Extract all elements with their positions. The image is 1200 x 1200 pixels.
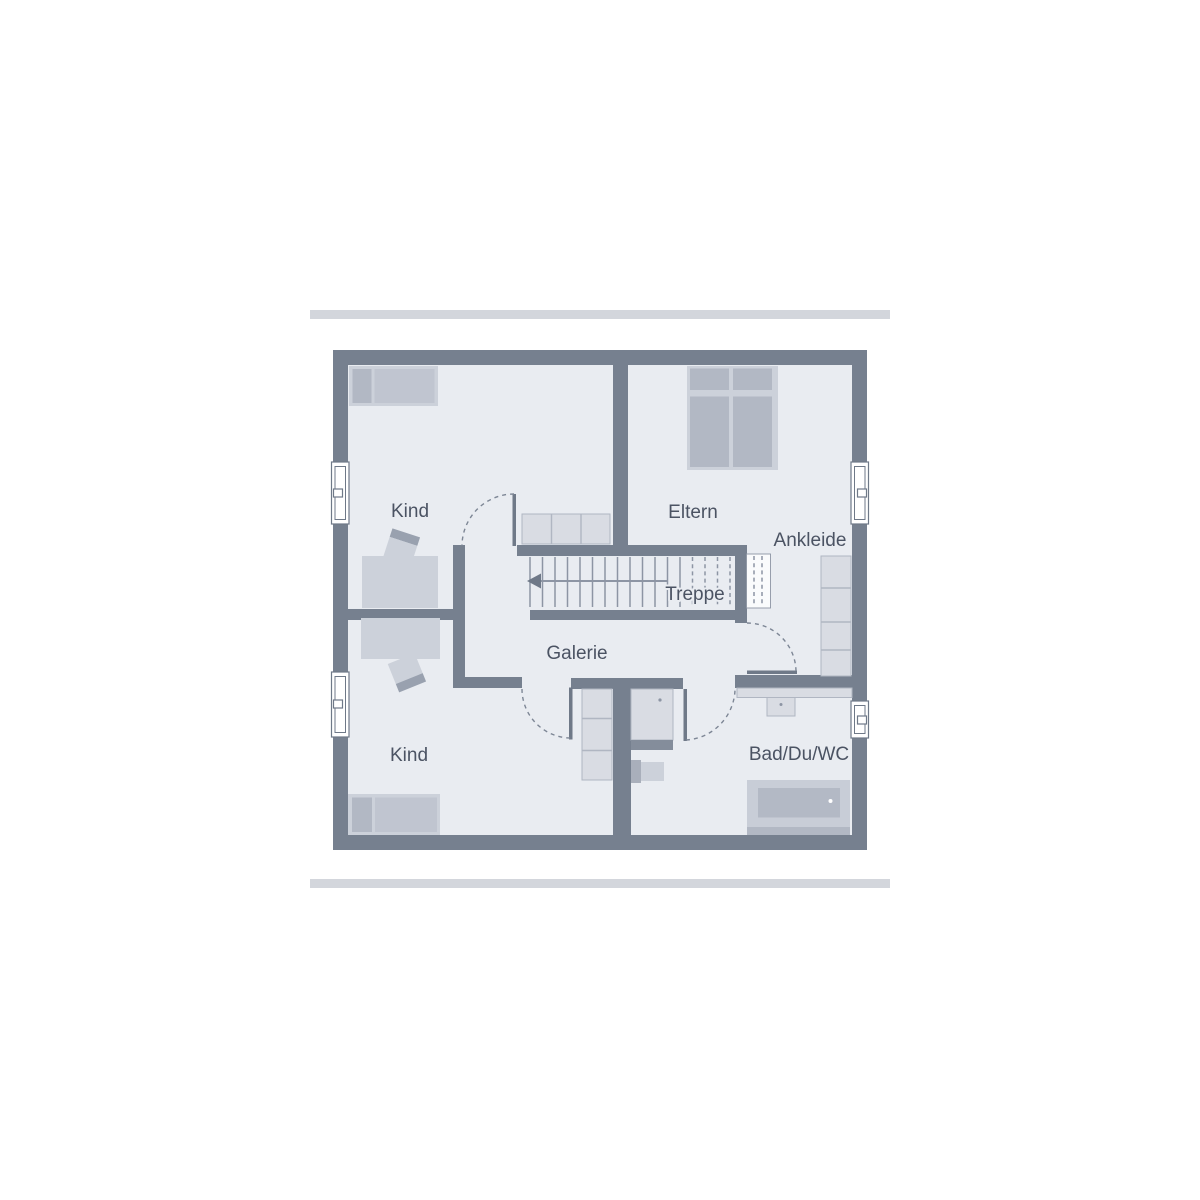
stair-upper-flight-outline <box>747 554 771 608</box>
stair-railing <box>530 610 740 620</box>
desk <box>361 618 440 659</box>
bed-pillow <box>353 369 372 403</box>
bottom-divider-bar <box>310 879 890 888</box>
bed-mattress-right <box>733 397 772 468</box>
window-handle <box>858 489 867 497</box>
room-label-bad: Bad/Du/WC <box>749 744 849 765</box>
outer-wall-bottom <box>333 835 867 850</box>
vanity-counter <box>737 688 852 698</box>
bed-pillow-left <box>690 369 729 391</box>
window-handle <box>858 716 867 724</box>
floor-plan-page: Kind Eltern Ankleide Treppe Galerie Kind… <box>0 0 1200 1200</box>
window-eltern <box>851 462 869 524</box>
bed-pillow-right <box>733 369 772 391</box>
bathtub-faucet <box>829 799 833 803</box>
outer-wall-left <box>333 350 348 850</box>
room-label-treppe: Treppe <box>665 584 725 605</box>
wall-closet-north <box>571 678 683 689</box>
desk <box>362 556 438 608</box>
door-leaf-kind-bottom <box>569 688 573 740</box>
door-leaf-bad <box>684 689 688 741</box>
window-bad <box>851 701 869 738</box>
window-kind-top <box>332 462 350 524</box>
room-label-kind-top: Kind <box>391 501 429 522</box>
bed-mattress-left <box>690 397 729 468</box>
toilet <box>631 760 664 783</box>
door-leaf-ankleide <box>747 671 797 675</box>
room-eltern-furniture <box>687 366 778 470</box>
window-kind-bottom <box>332 672 350 737</box>
wardrobe <box>821 556 851 676</box>
door-leaf-kind-top <box>513 494 517 546</box>
room-label-eltern: Eltern <box>668 502 718 523</box>
room-label-kind-bottom: Kind <box>390 745 428 766</box>
window-handle <box>334 489 343 497</box>
room-label-galerie: Galerie <box>546 643 607 664</box>
bed-mattress <box>375 798 437 833</box>
wall-center-vertical <box>613 688 631 847</box>
floor-plan-drawing: Kind Eltern Ankleide Treppe Galerie Kind… <box>0 0 1200 1200</box>
wall-kind2-north <box>453 677 522 688</box>
room-label-ankleide: Ankleide <box>774 530 847 551</box>
wall-bad-north <box>735 675 852 688</box>
outer-wall-right <box>852 350 867 850</box>
closet-wardrobe <box>582 689 612 780</box>
shower <box>631 689 673 750</box>
top-divider-bar <box>310 310 890 319</box>
bed-pillow <box>352 798 372 833</box>
wall-stair-top <box>517 545 747 556</box>
bathtub <box>747 780 850 835</box>
shower-drain <box>658 698 661 701</box>
window-handle <box>334 700 343 708</box>
washbasin <box>767 698 795 717</box>
room-ankleide-furniture <box>821 556 851 676</box>
wall-kind-eltern <box>613 365 628 556</box>
outer-wall-top <box>333 350 867 365</box>
bed-mattress <box>375 369 435 403</box>
shelf-cabinet <box>522 514 610 544</box>
